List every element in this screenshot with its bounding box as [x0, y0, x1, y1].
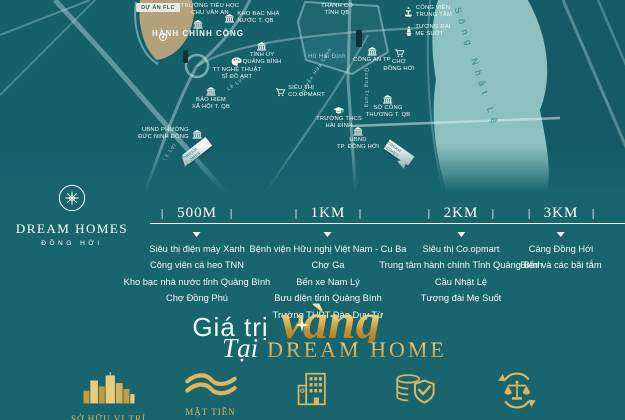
city-map: DỰ ÁN FLC Sông Nhật Lệ TRƯỜNG TIỂU HỌC C… [0, 0, 625, 198]
cart-icon [275, 88, 285, 97]
headline-line2: Tại DREAM HOME [22, 333, 625, 364]
map-poi-sieu-thi-coopmart: SIÊU THỊ CO.OPMART [275, 85, 325, 99]
distance-label: 3KM [515, 205, 608, 222]
map-poi-tt-nghe-thuat-si-do-art: TT NGHỆ THUẬT SĨ ĐỒ ART [213, 57, 262, 81]
map-poi-label: CÔNG VIÊN TRUNG TÂM [416, 5, 452, 19]
amenity-item: Công viên cá heo TNN [124, 257, 271, 274]
map-poi-label: UBND PHƯỜNG ĐỨC NINH ĐÔNG [138, 127, 189, 141]
map-poi-thanh-co-tinh-qb: THÀNH CỔ TỈNH QB [321, 3, 353, 17]
statue-icon [405, 26, 412, 36]
logo-subtitle: ĐỒNG HỚI [8, 240, 136, 247]
distance-label: 1KM [282, 205, 375, 222]
pointer-triangle-icon [193, 232, 201, 237]
map-poi-label: SIÊU THỊ CO.OPMART [288, 85, 325, 99]
amenity-item: Siêu thị điện máy Xanh [124, 241, 271, 258]
map-poi-cho-dong-hoi: CHỢ ĐỒNG HỚI [383, 49, 414, 73]
gov-icon [192, 130, 202, 139]
gov-icon [367, 47, 377, 56]
pointer-triangle-icon [557, 232, 565, 237]
headline-connector: Tại [222, 333, 258, 364]
pointer-triangle-icon [457, 232, 465, 237]
map-poi-label: UBND TP. ĐỒNG HỚI [337, 137, 379, 151]
headline: Giá trị vàng Tại DREAM HOME [0, 297, 625, 364]
map-poi-cong-vien-trung-tam: CÔNG VIÊN TRUNG TÂM [404, 5, 452, 19]
gov-icon [383, 95, 393, 104]
map-poi-label: CHỢ ĐỒNG HỚI [383, 59, 414, 73]
cap-icon [334, 107, 345, 115]
cart-icon [394, 49, 404, 58]
map-poi-label: THÀNH CỔ TỈNH QB [321, 3, 353, 17]
feature-toa-nha [276, 372, 350, 420]
map-poi-tuong-dai-me-suot: TƯỢNG ĐÀI MẸ SUỐT [405, 24, 450, 38]
feature-row: SỞ HỮU VỊ TRÍMẶT TIỀN [0, 372, 625, 420]
amenity-item: Cảng Đồng Hới [515, 241, 608, 258]
distance-column-500m: 500MSiêu thị điện máy XanhCông viên cá h… [124, 205, 271, 307]
map-poi-ubnd-phuong-duc-ninh-dong: UBND PHƯỜNG ĐỨC NINH ĐÔNG [138, 127, 202, 141]
feature-vi-tri: SỞ HỮU VỊ TRÍ [72, 372, 146, 420]
building-icon [294, 372, 332, 411]
map-poi-so-cong-thuong-t-qb: SỞ CÔNG THƯƠNG T. QB [366, 95, 411, 119]
map-poi-label: BẢO HIỂM XÃ HỘI T. QB [192, 97, 230, 111]
logo-title: DREAM HOMES [8, 221, 136, 237]
map-poi-ubnd-tp-dong-hoi: UBND TP. ĐỒNG HỚI [337, 127, 379, 151]
distance-column-3km: 3KMCảng Đồng HớiBiển và các bãi tắm [515, 205, 608, 274]
flc-project-badge: DỰ ÁN FLC [136, 3, 180, 12]
distance-label: 2KM [415, 205, 508, 222]
waves-icon [184, 372, 238, 404]
map-poi-label: Hồ Hải Định [308, 54, 346, 61]
feature-phap-ly [378, 372, 452, 420]
feature-label: SỞ HỮU VỊ TRÍ [71, 414, 146, 420]
flower-emblem-icon [8, 184, 136, 217]
map-poi-hanh-chinh-cong: HÀNH CHÍNH CÔNG [152, 20, 244, 37]
headline-brand: DREAM HOME [267, 337, 447, 363]
skyline-icon [80, 372, 138, 411]
distance-label: 500M [148, 205, 246, 222]
amenity-item: Kho bạc nhà nước tỉnh Quảng Bình [124, 274, 271, 291]
brand-logo: DREAM HOMES ĐỒNG HỚI [8, 184, 136, 247]
gov-icon [206, 87, 216, 96]
amenity-item: Cầu Nhật Lệ [379, 274, 542, 291]
map-poi-label: TT NGHỆ THUẬT SĨ ĐỒ ART [213, 67, 262, 81]
gov-icon [353, 127, 363, 136]
shield-coins-icon [393, 372, 437, 411]
fountain-icon [404, 7, 413, 17]
map-poi-label: HÀNH CHÍNH CÔNG [152, 30, 244, 37]
sparkle-icon [295, 293, 309, 337]
gov-icon [257, 42, 267, 51]
scales-icon [497, 372, 537, 414]
map-graphics [0, 0, 625, 198]
amenity-item: Biển và các bãi tắm [515, 257, 608, 274]
map-poi-label: TƯỢNG ĐÀI MẸ SUỐT [415, 24, 450, 38]
poster: DỰ ÁN FLC Sông Nhật Lệ TRƯỜNG TIỂU HỌC C… [0, 0, 625, 420]
project-marker-pointer [180, 157, 192, 168]
map-poi-label: SỞ CÔNG THƯƠNG T. QB [366, 105, 411, 119]
feature-thanh-khoan [480, 372, 554, 420]
pointer-triangle-icon [324, 232, 332, 237]
feature-mat-tien: MẶT TIỀN [174, 372, 248, 420]
feature-label: MẶT TIỀN [185, 407, 235, 417]
gov-icon [193, 20, 203, 29]
map-poi-ho-hai-dinh: Hồ Hải Định [308, 54, 346, 61]
map-poi-bao-hiem-xa-hoi-t-qb: BẢO HIỂM XÃ HỘI T. QB [192, 87, 230, 111]
palette-icon [232, 57, 242, 66]
